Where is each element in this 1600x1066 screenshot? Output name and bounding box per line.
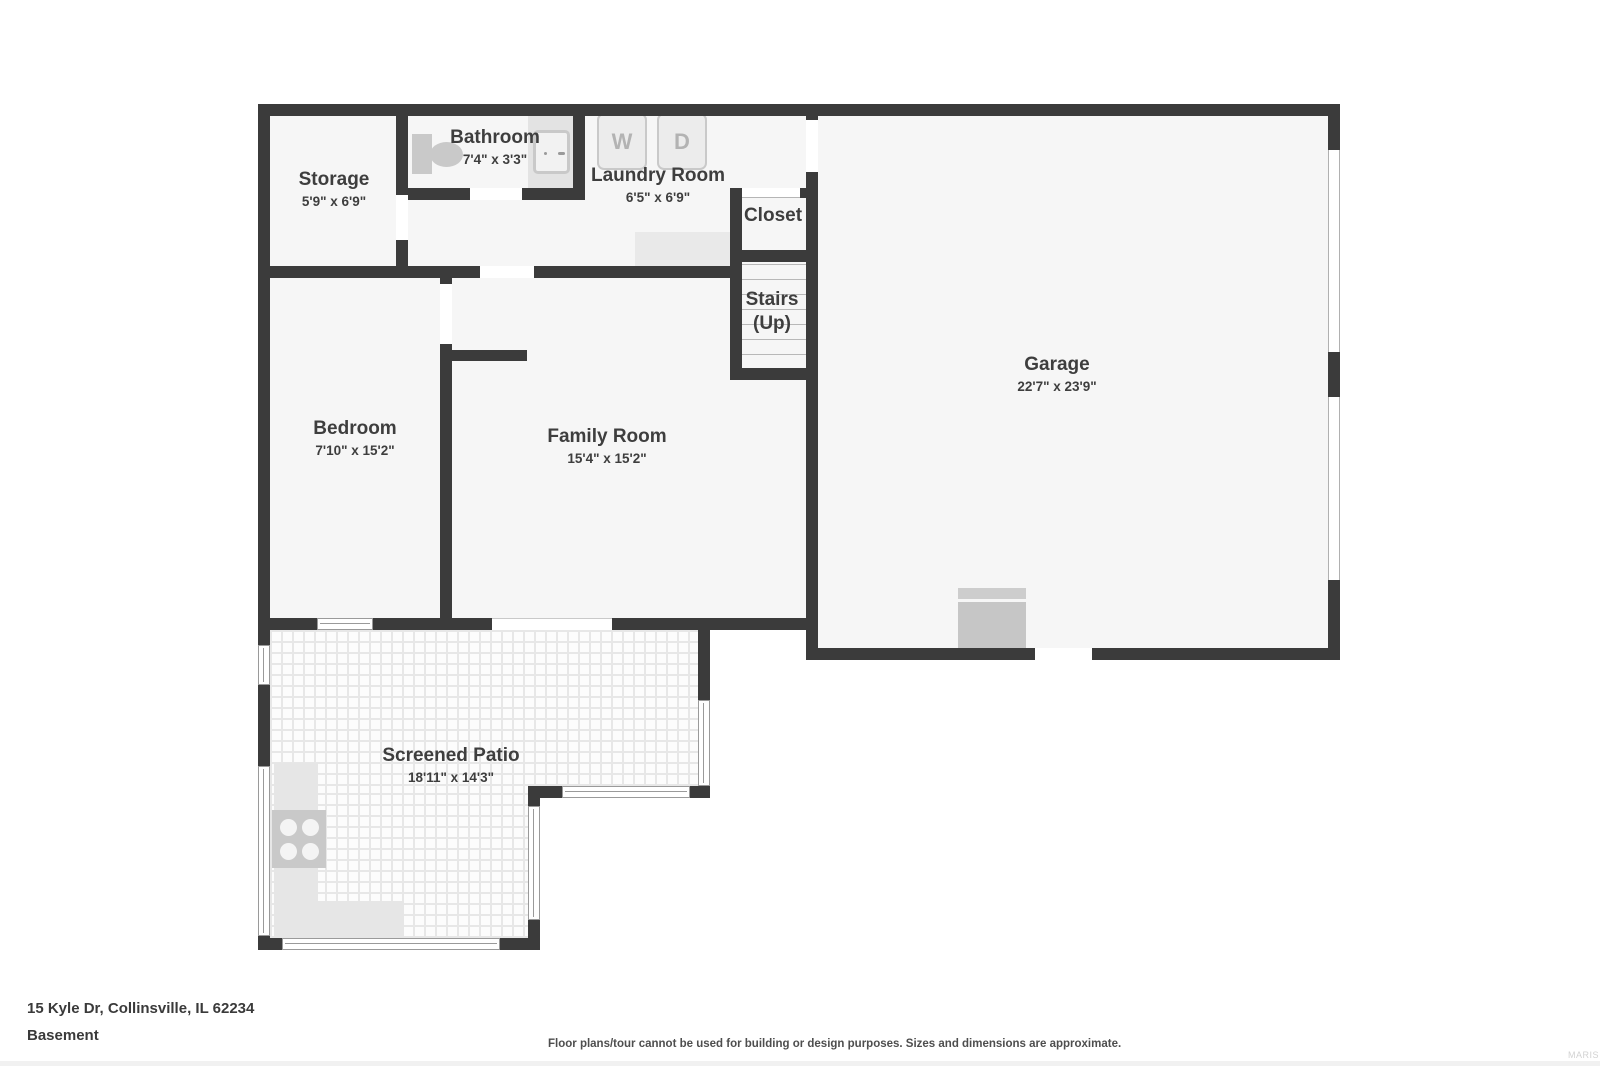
wall	[573, 116, 585, 200]
wall	[1328, 580, 1340, 660]
door-opening-hall	[480, 266, 534, 278]
burner-icon	[302, 819, 319, 836]
floor-label: Basement	[27, 1027, 99, 1044]
room-name: Garage	[1017, 353, 1096, 377]
patio-window-notch-top	[562, 786, 690, 798]
room-dims: 15'4" x 15'2"	[547, 451, 666, 466]
faucet-dash	[558, 152, 565, 155]
wall	[396, 116, 408, 195]
burner-icon	[280, 843, 297, 860]
wall	[806, 648, 1035, 660]
room-dims: 7'4" x 3'3"	[450, 152, 540, 167]
room-name: Closet	[744, 204, 802, 228]
toilet-icon	[412, 134, 432, 174]
dryer-letter: D	[674, 129, 690, 155]
wall	[730, 262, 742, 380]
room-label-screened-patio: Screened Patio 18'11" x 14'3"	[382, 744, 519, 785]
property-address: 15 Kyle Dr, Collinsville, IL 62234	[27, 1000, 254, 1017]
wall	[1092, 648, 1340, 660]
wall	[258, 630, 270, 645]
burner-icon	[302, 843, 319, 860]
door-opening-garage-rear	[1035, 648, 1092, 660]
wall	[612, 618, 818, 630]
patio-window-notch-side	[528, 806, 540, 920]
room-label-bedroom: Bedroom 7'10" x 15'2"	[313, 417, 396, 458]
room-dims: 7'10" x 15'2"	[313, 443, 396, 458]
room-dims: 5'9" x 6'9"	[299, 194, 370, 209]
garage-door-2	[1328, 397, 1340, 580]
door-opening-closet	[742, 188, 800, 198]
wall	[1328, 116, 1340, 150]
patio-window-left-1	[258, 645, 270, 685]
maris-watermark: MARIS	[1568, 1050, 1599, 1060]
room-name: Screened Patio	[382, 744, 519, 768]
washer-letter: W	[612, 129, 633, 155]
wall	[258, 104, 1340, 116]
wall	[396, 240, 408, 278]
door-opening-garage-laundry	[806, 120, 818, 172]
bottom-strip	[0, 1061, 1600, 1066]
stove-icon	[272, 810, 326, 868]
dryer-icon: D	[657, 113, 707, 170]
patio-window-left-2	[258, 766, 270, 936]
laundry-counter	[635, 232, 731, 268]
room-label-storage: Storage 5'9" x 6'9"	[299, 168, 370, 209]
room-label-stairs: Stairs (Up)	[746, 288, 799, 336]
room-dims: 18'11" x 14'3"	[382, 770, 519, 785]
room-dims: 22'7" x 23'9"	[1017, 379, 1096, 394]
room-dims: 6'5" x 6'9"	[591, 190, 725, 205]
bedroom-window	[317, 618, 373, 630]
patio-entry-opening	[492, 618, 612, 630]
furnace-icon	[958, 602, 1026, 652]
garage-door-1	[1328, 150, 1340, 352]
room-label-closet: Closet	[744, 204, 802, 228]
room-name: Bedroom	[313, 417, 396, 441]
patio-window-bottom	[282, 938, 500, 950]
wall	[1328, 352, 1340, 397]
disclaimer-text: Floor plans/tour cannot be used for buil…	[548, 1038, 1121, 1050]
wall	[730, 368, 818, 380]
room-label-laundry: Laundry Room 6'5" x 6'9"	[591, 164, 725, 205]
wall	[258, 266, 480, 278]
room-label-bathroom: Bathroom 7'4" x 3'3"	[450, 126, 540, 167]
patio-counter-bottom	[274, 901, 404, 938]
washer-icon: W	[597, 113, 647, 170]
wall	[730, 188, 742, 262]
faucet-dot	[544, 152, 547, 155]
furnace-top	[958, 588, 1026, 599]
patio-window-right	[698, 700, 710, 786]
door-opening-storage	[396, 195, 408, 240]
wall	[534, 266, 742, 278]
wall	[258, 936, 270, 950]
wall	[258, 685, 270, 766]
room-name: Storage	[299, 168, 370, 192]
wall	[440, 344, 452, 630]
room-name: Stairs	[746, 288, 799, 312]
wall	[446, 350, 527, 361]
room-name: Bathroom	[450, 126, 540, 150]
wall	[806, 172, 818, 648]
door-opening-bedroom	[440, 284, 452, 344]
floor-plan: W D	[0, 0, 1600, 1066]
door-opening-bathroom	[470, 188, 522, 200]
stairs-direction: (Up)	[746, 312, 799, 336]
wall	[258, 116, 270, 630]
room-label-family-room: Family Room 15'4" x 15'2"	[547, 425, 666, 466]
wall	[373, 618, 492, 630]
room-name: Laundry Room	[591, 164, 725, 188]
room-label-garage: Garage 22'7" x 23'9"	[1017, 353, 1096, 394]
room-name: Family Room	[547, 425, 666, 449]
burner-icon	[280, 819, 297, 836]
